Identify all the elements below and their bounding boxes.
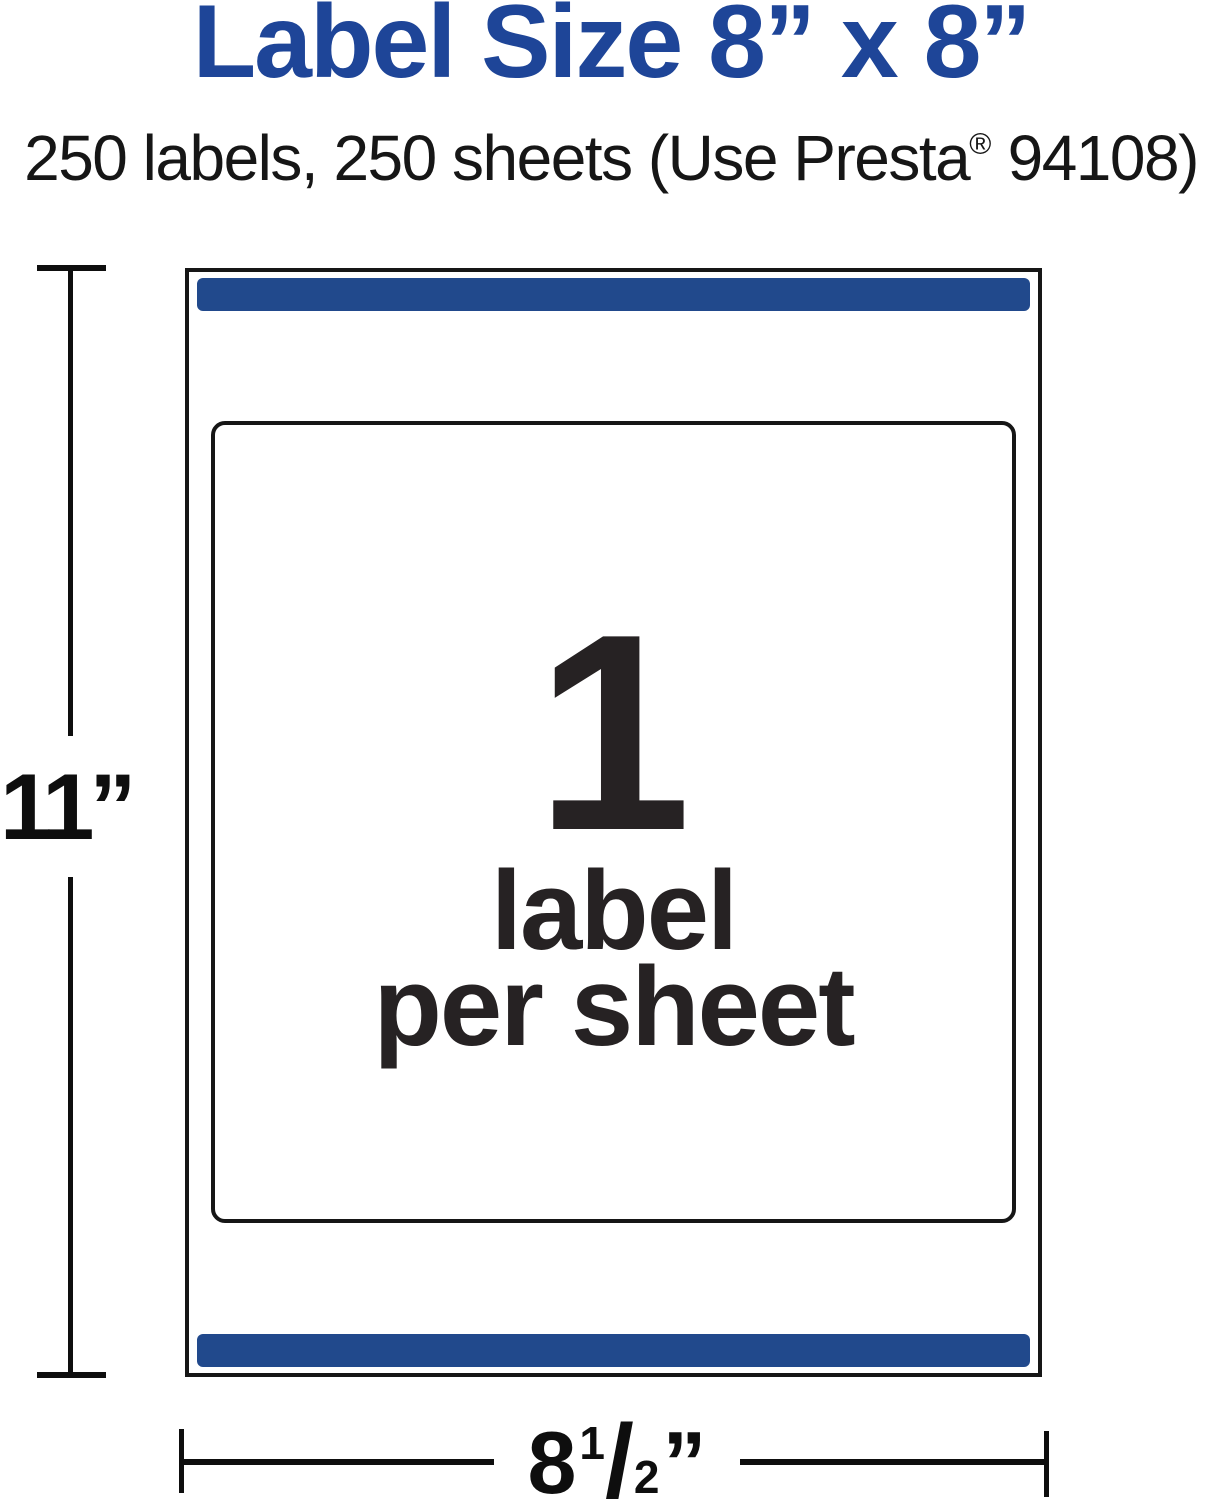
label-sheet-outline: 1 label per sheet [185,268,1042,1377]
registered-trademark-mark: ® [969,130,991,160]
width-dimension-line-left [184,1459,494,1465]
width-dimension-line-right [740,1459,1044,1465]
width-unit-mark: ” [663,1413,707,1500]
width-dimension-label: 81/2” [494,1419,740,1500]
height-dimension-label: 11” [0,760,124,854]
labels-per-sheet-count: 1 [215,593,1012,873]
width-fraction-numerator: 1 [579,1420,605,1466]
page-title: Label Size 8” x 8” [0,0,1222,94]
label-outline: 1 label per sheet [211,421,1016,1223]
page-subtitle: 250 labels, 250 sheets (Use Presta® 9410… [0,126,1222,190]
height-dimension-line-upper [68,268,73,736]
width-fraction-denominator: 2 [634,1454,660,1500]
height-dimension-bottom-tick [37,1372,106,1378]
subtitle-sku: 94108) [991,122,1198,194]
subtitle-text: 250 labels, 250 sheets (Use Presta [24,122,969,194]
labels-per-sheet-caption-line2: per sheet [215,951,1012,1063]
width-dimension-right-tick [1044,1431,1049,1497]
height-dimension-line-lower [68,877,73,1375]
sheet-top-margin-bar [197,278,1030,311]
label-spec-diagram: Label Size 8” x 8” 250 labels, 250 sheet… [0,0,1222,1500]
width-whole-number: 8 [527,1413,576,1500]
sheet-bottom-margin-bar [197,1334,1030,1367]
